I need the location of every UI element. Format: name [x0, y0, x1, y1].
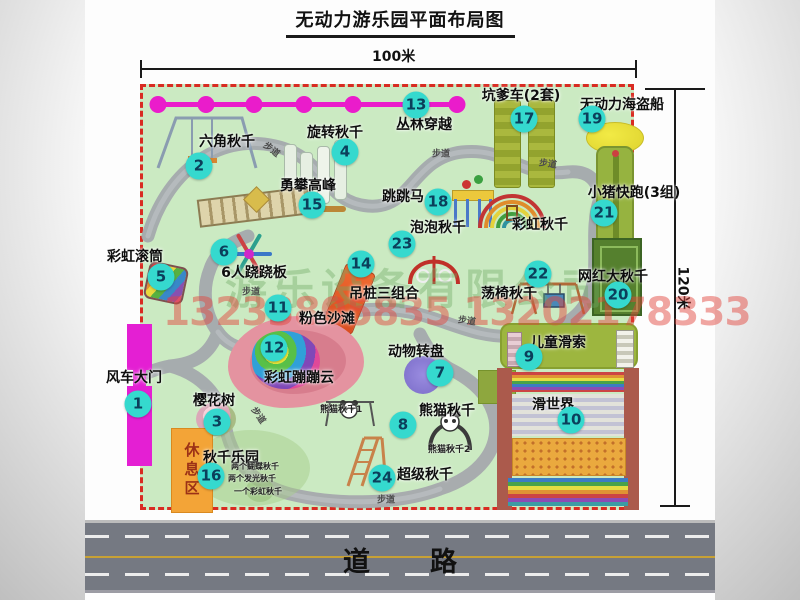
attraction-badge-21: 21 [591, 200, 618, 227]
dim-tick-top-right [635, 60, 637, 78]
zipline-dot [345, 96, 362, 113]
attraction-label-彩虹秋千: 彩虹秋千 [512, 214, 568, 234]
road-dash-top [85, 535, 715, 538]
attraction-badge-10: 10 [558, 407, 585, 434]
swing-park-notes: 两个蝴蝶秋千 两个发光秋千 一个彩虹秋千 [231, 461, 282, 498]
attraction-badge-5: 5 [148, 264, 175, 291]
page-title-text: 无动力游乐园平面布局图 [286, 6, 515, 38]
attraction-badge-22: 22 [525, 261, 552, 288]
slide-world-rainbow-top [512, 372, 624, 392]
page-title: 无动力游乐园平面布局图 [0, 6, 800, 38]
slide-world-icon [478, 368, 640, 510]
attraction-badge-14: 14 [348, 251, 375, 278]
attraction-badge-16: 16 [198, 463, 225, 490]
windmill-gate-icon [127, 324, 152, 370]
attraction-badge-18: 18 [425, 189, 452, 216]
horse-blob [462, 180, 471, 189]
attraction-badge-6: 6 [211, 239, 238, 266]
attraction-badge-11: 11 [265, 295, 292, 322]
dim-tick-right-top [645, 88, 705, 90]
kids-zipline-tower [616, 330, 634, 368]
attraction-badge-13: 13 [403, 92, 430, 119]
attraction-badge-9: 9 [516, 344, 543, 371]
attraction-label-13: 丛林穿越 [396, 114, 452, 134]
attraction-badge-23: 23 [389, 231, 416, 258]
attraction-badge-3: 3 [204, 409, 231, 436]
attraction-label-23: 泡泡秋千 [410, 217, 466, 237]
attraction-badge-7: 7 [427, 360, 454, 387]
panda-swing-2-label: 熊猫秋千2 [428, 442, 470, 455]
road-label: 道路 [85, 540, 715, 579]
attraction-badge-12: 12 [261, 335, 288, 362]
walkway-label-2: 步道 [432, 147, 450, 160]
attraction-label-22: 荡椅秋千 [481, 283, 537, 303]
attraction-label-8: 熊猫秋千 [419, 400, 475, 420]
walkway-label-7: 步道 [377, 493, 395, 506]
piggy-run-marker [612, 150, 619, 157]
road: 道路 [85, 520, 715, 593]
attraction-label-6: 6人跷跷板 [221, 262, 287, 282]
attraction-badge-24: 24 [369, 465, 396, 492]
attraction-label-12: 彩虹蹦蹦云 [264, 367, 334, 387]
attraction-badge-20: 20 [605, 282, 632, 309]
walkway-label-4: 步道 [242, 285, 260, 298]
slide-world-rainbow-bottom [508, 478, 628, 506]
panda-swing-1-label: 熊猫秋千1 [320, 402, 362, 415]
attraction-badge-1: 1 [125, 391, 152, 418]
attraction-badge-17: 17 [511, 106, 538, 133]
attraction-label-5: 彩虹滚筒 [107, 246, 163, 266]
walkway-label-3: 步道 [538, 155, 558, 170]
walkway-label-5: 步道 [457, 312, 477, 327]
attraction-label-18: 跳跳马 [382, 186, 424, 206]
attraction-badge-2: 2 [186, 153, 213, 180]
zipline-dot [296, 96, 313, 113]
attraction-label-3: 樱花树 [193, 390, 235, 410]
zipline-dot [449, 96, 466, 113]
swing-park-note-1: 两个蝴蝶秋千 [231, 461, 282, 473]
attraction-badge-15: 15 [299, 192, 326, 219]
attraction-label-1: 风车大门 [106, 367, 162, 387]
attraction-label-24: 超级秋千 [397, 464, 453, 484]
attraction-label-4: 旋转秋千 [307, 122, 363, 142]
attraction-badge-8: 8 [390, 412, 417, 439]
dim-line-top [140, 68, 637, 70]
dim-tick-right-bottom [660, 505, 690, 507]
attraction-label-2: 六角秋千 [199, 131, 255, 151]
swing-park-note-2: 两个发光秋千 [228, 473, 282, 485]
horse-leg [466, 199, 469, 227]
attraction-label-17: 坑爹车(2套) [482, 85, 561, 105]
slide-world-orange-band [512, 438, 626, 476]
attraction-badge-4: 4 [332, 139, 359, 166]
dim-label-100m: 100米 [372, 46, 415, 66]
screenshot-root: { "title": "无动力游乐园平面布局图", "dim_top": "10… [0, 0, 800, 600]
attraction-label-7: 动物转盘 [388, 341, 444, 361]
attraction-label-11: 粉色沙滩 [299, 308, 355, 328]
dim-tick-top-left [140, 60, 142, 78]
attraction-label-14: 吊桩三组合 [349, 283, 419, 303]
attraction-badge-19: 19 [579, 106, 606, 133]
swing-park-note-3: 一个彩虹秋千 [234, 486, 282, 498]
